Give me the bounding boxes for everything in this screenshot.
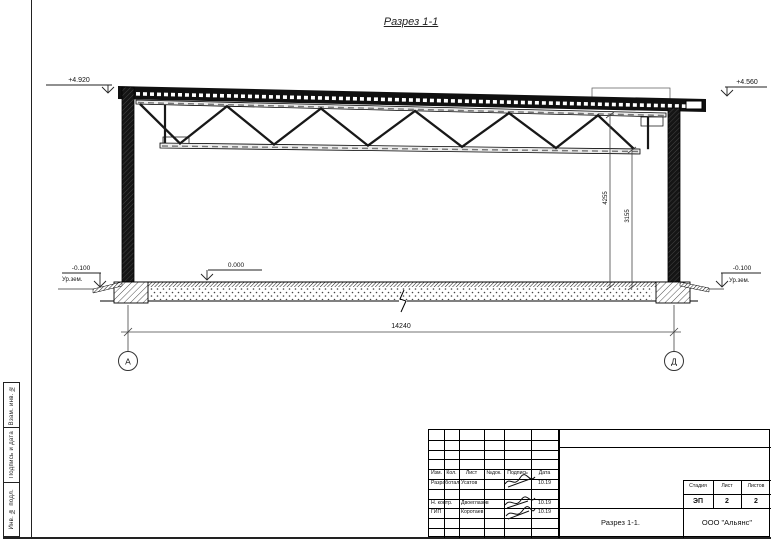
- tb-role-ncontrol: Н. контр.: [429, 499, 461, 508]
- elevation-mark-left-top: [46, 85, 114, 93]
- stamp-cell-podpis: Подпись и дата: [3, 427, 20, 482]
- signature-developer: [505, 475, 535, 487]
- stamp-cell-vzam: Взам. инв. №: [3, 382, 20, 427]
- stamp-cell-vzam-label: Взам. инв. №: [9, 385, 15, 425]
- roof-end-box: [686, 101, 702, 109]
- column-left: [122, 87, 134, 282]
- axis-right-label: Д: [671, 357, 677, 367]
- elevation-floor-value: 0.000: [228, 262, 245, 269]
- floor-slab: [150, 287, 652, 300]
- dim-4255-value: 4255: [603, 191, 609, 205]
- stamp-cell-inv-label: Инв. № подл.: [9, 489, 15, 530]
- elevation-mark-right-top: [721, 87, 767, 96]
- tb-role-developer: Разработал: [429, 479, 461, 489]
- dim-span-value: 14240: [391, 323, 411, 330]
- frame-left-border: [31, 0, 32, 538]
- tb-name-gip: Коротаев: [459, 508, 506, 518]
- tb-name-ncontrol: Двоеглазов: [459, 499, 506, 508]
- dim-3155-value: 3155: [625, 209, 631, 223]
- signature-gip: [506, 507, 535, 519]
- tb-line: [429, 450, 558, 451]
- tb-header-kol: Кол.: [444, 469, 459, 479]
- stamp-cell-podpis-label: Подпись и дата: [9, 431, 15, 478]
- tb-line: [429, 440, 558, 441]
- axis-left-label: А: [125, 357, 131, 367]
- tb-header-ndok: №док.: [484, 469, 504, 479]
- column-right: [668, 108, 680, 282]
- tb-line: [429, 528, 558, 529]
- elevation-left-top-value: +4.920: [68, 77, 90, 84]
- left-margin-stamps: Взам. инв. № Подпись и дата Инв. № подл.: [3, 382, 20, 537]
- tb-header-izm: Изм.: [429, 469, 444, 479]
- tb-stage-header: Стадия: [683, 480, 713, 494]
- title-block: Изм. Кол. Лист №док. Подпись Дата Разраб…: [428, 429, 770, 537]
- signatures: [502, 474, 538, 524]
- elevation-ground-right-label: Ур.зем.: [729, 278, 750, 284]
- elevation-ground-left-value: -0.100: [72, 265, 91, 272]
- stamp-cell-inv: Инв. № подл.: [3, 482, 20, 537]
- tb-stage-value: ЭП: [683, 494, 713, 508]
- elevation-right-top-value: +4.560: [736, 79, 758, 86]
- tb-name-developer: Усатов: [459, 479, 506, 489]
- tb-doc-title: Разрез 1-1.: [558, 508, 683, 538]
- tb-line: [558, 447, 771, 448]
- elevation-mark-floor: [201, 270, 262, 280]
- tb-sheet-value: 2: [713, 494, 741, 508]
- tb-role-gip: ГИП: [429, 508, 461, 518]
- tb-header-list: Лист: [459, 469, 484, 479]
- tb-line: [429, 518, 558, 519]
- tb-line: [429, 459, 558, 460]
- signature-ncontrol: [505, 497, 535, 508]
- tb-sheets-value: 2: [741, 494, 771, 508]
- tb-sheet-header: Лист: [713, 480, 741, 494]
- tb-company: ООО "Альянс": [683, 508, 771, 538]
- tb-sheets-header: Листов: [741, 480, 771, 494]
- tb-line: [429, 489, 558, 490]
- truss-bottom-chord: [160, 143, 640, 154]
- elevation-ground-left-label: Ур.зем.: [62, 277, 83, 283]
- elevation-ground-right-value: -0.100: [733, 265, 752, 272]
- floor-topping: [134, 282, 668, 287]
- truss-seat-right: [641, 117, 663, 126]
